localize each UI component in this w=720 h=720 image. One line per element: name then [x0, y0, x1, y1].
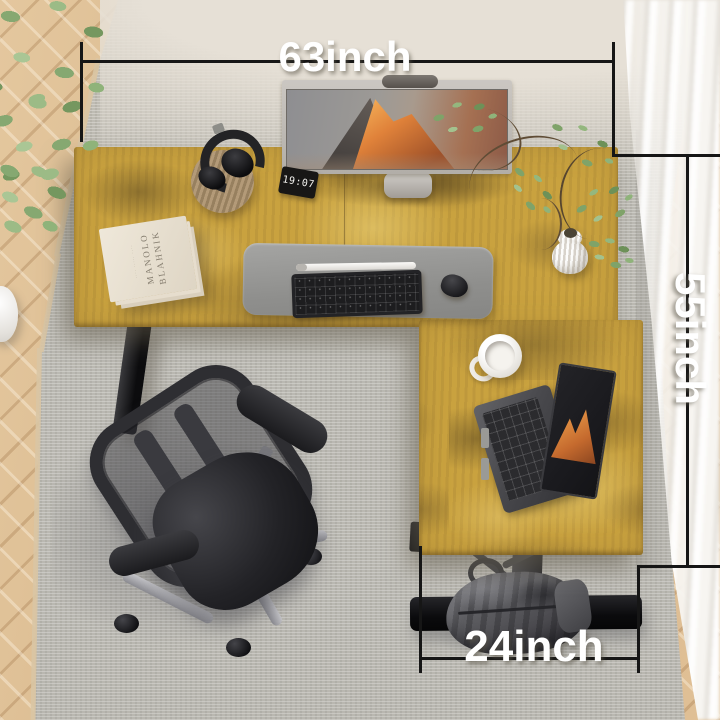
laptop-hinge [481, 458, 489, 480]
dimension-tick [419, 546, 422, 673]
mug-rim [485, 341, 515, 371]
book-title: MANOLO BLAHNIK [137, 229, 169, 287]
dimension-label-depth: 55inch [666, 272, 714, 452]
dimension-tick [612, 154, 720, 157]
laptop-hinge [481, 428, 489, 448]
coffee-mug [478, 334, 522, 378]
laptop-mountain-wallpaper [551, 405, 604, 464]
book-stack: ···· ····· ···· MANOLO BLAHNIK [99, 216, 197, 303]
keyboard [291, 270, 422, 319]
dimension-tick [80, 42, 83, 142]
dimension-label-width: 63inch [245, 33, 445, 81]
dimension-tick [637, 565, 720, 568]
dimension-tick [612, 42, 615, 157]
dimension-label-return-width: 24inch [428, 622, 640, 672]
book-subtitle-lines: ···· ····· ···· [129, 244, 140, 279]
monitor-stand [384, 172, 432, 198]
clock-time: 19:07 [281, 174, 315, 190]
plant-leaves [582, 231, 638, 279]
